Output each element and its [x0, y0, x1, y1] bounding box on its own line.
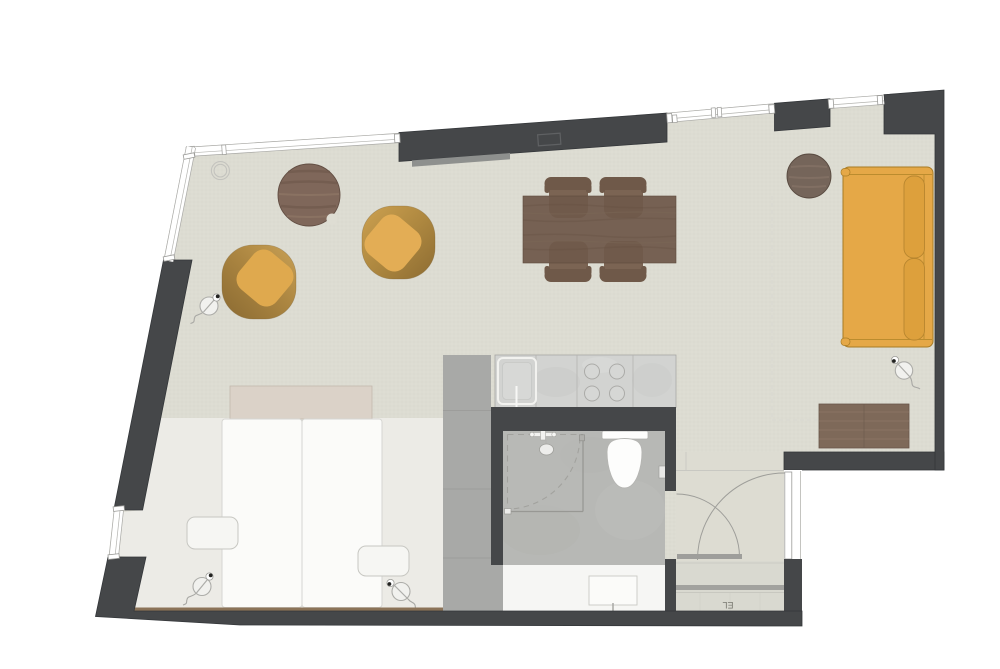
svg-text:EL: EL	[722, 600, 733, 610]
